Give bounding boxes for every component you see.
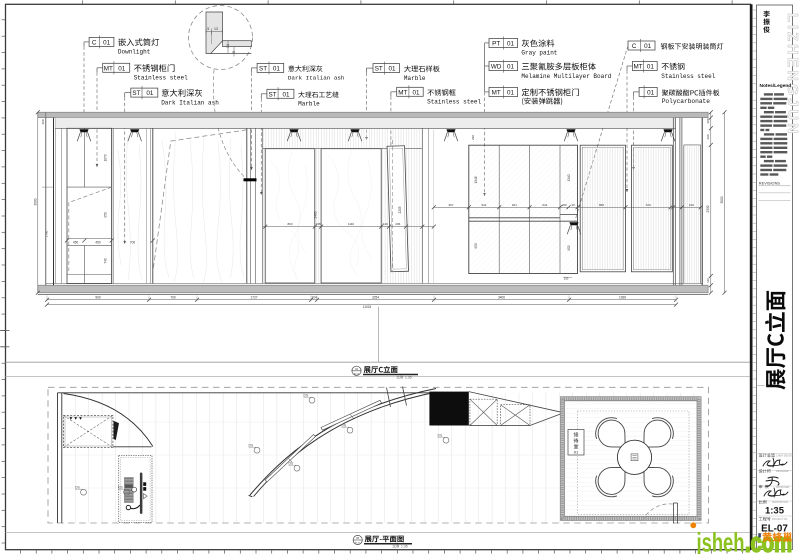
svg-text:01: 01 (146, 90, 154, 97)
svg-text:Stainless steel: Stainless steel (134, 75, 188, 82)
svg-text:397: 397 (448, 203, 453, 207)
svg-text:290: 290 (471, 135, 475, 140)
svg-text:2400: 2400 (313, 211, 317, 218)
svg-text:C: C (632, 43, 637, 50)
svg-text:MT: MT (492, 90, 501, 97)
svg-text:941: 941 (481, 203, 486, 207)
svg-text:450: 450 (95, 240, 101, 244)
svg-text:108: 108 (315, 222, 320, 226)
svg-text:01: 01 (388, 66, 396, 73)
svg-text:1340: 1340 (567, 174, 571, 181)
svg-text:DS: DS (249, 444, 254, 448)
svg-text:05: 05 (356, 536, 360, 540)
svg-text:866: 866 (599, 203, 604, 207)
svg-text:3254: 3254 (372, 295, 379, 299)
svg-text:PT: PT (492, 41, 500, 48)
svg-text:LIZHENGJUN: LIZHENGJUN (784, 13, 800, 137)
svg-text:01: 01 (282, 91, 290, 98)
svg-text:01: 01 (647, 64, 655, 71)
svg-text:MT: MT (104, 65, 113, 72)
svg-text:APPROVED: APPROVED (776, 486, 790, 489)
svg-text:2205: 2205 (398, 206, 402, 213)
svg-text:CHIEF DESIGN: CHIEF DESIGN (776, 454, 793, 457)
svg-text:ST: ST (259, 65, 267, 72)
svg-text:1939: 1939 (619, 295, 626, 299)
svg-text:MT: MT (633, 64, 642, 71)
svg-text:ST: ST (375, 66, 383, 73)
svg-text:ST: ST (132, 90, 140, 97)
svg-text:Melamine Multilayer Board: Melamine Multilayer Board (521, 73, 611, 80)
svg-text:EL07: EL07 (355, 543, 361, 545)
svg-text:1070: 1070 (104, 154, 108, 161)
svg-text:941: 941 (512, 203, 517, 207)
svg-text:01: 01 (507, 64, 515, 71)
svg-text:01: 01 (118, 65, 126, 72)
svg-text:450: 450 (73, 240, 79, 244)
svg-text:160: 160 (706, 278, 710, 283)
svg-text:PROPORTION: PROPORTION (772, 501, 788, 504)
svg-text:803: 803 (287, 222, 292, 226)
svg-text:1346: 1346 (474, 176, 478, 183)
svg-text:EL07: EL07 (354, 373, 360, 375)
svg-text:319: 319 (689, 203, 694, 207)
svg-text:REVISIONS: REVISIONS (759, 181, 781, 186)
svg-text:140: 140 (383, 222, 388, 226)
svg-text:jsheh: jsheh (696, 528, 745, 554)
svg-text:C: C (92, 39, 97, 46)
svg-text:01: 01 (413, 89, 421, 96)
svg-text:700: 700 (130, 240, 136, 244)
svg-text:MT: MT (398, 89, 407, 96)
svg-text:720: 720 (645, 203, 650, 207)
svg-text:DS: DS (75, 486, 80, 490)
svg-text:13: 13 (226, 44, 230, 48)
svg-text:11024: 11024 (363, 305, 372, 309)
svg-text:5: 5 (207, 27, 209, 31)
svg-text:01: 01 (574, 450, 579, 455)
svg-text:2330: 2330 (706, 205, 710, 212)
svg-text:Gray paint: Gray paint (521, 50, 557, 57)
svg-text:Stainless steel: Stainless steel (661, 73, 715, 80)
svg-text:Dark Italian ash: Dark Italian ash (161, 99, 219, 106)
svg-text:Dark Italian ash: Dark Italian ash (288, 75, 345, 82)
svg-text:290: 290 (706, 134, 710, 139)
svg-text:DESIGNER: DESIGNER (776, 470, 789, 473)
svg-text:3000: 3000 (720, 196, 724, 203)
svg-text:300: 300 (41, 119, 45, 124)
svg-text:296: 296 (395, 222, 400, 226)
svg-text:01: 01 (647, 89, 655, 96)
svg-text:PROJECT NO: PROJECT NO (772, 518, 788, 521)
svg-text:Polycarbonate: Polycarbonate (662, 98, 711, 105)
svg-text:01: 01 (644, 43, 652, 50)
svg-text:1:35: 1:35 (765, 505, 785, 516)
svg-text:DS: DS (304, 394, 309, 398)
svg-text:902: 902 (567, 245, 571, 251)
svg-text:1:35: 1:35 (401, 545, 408, 549)
svg-text:900: 900 (95, 295, 101, 299)
svg-text:01: 01 (507, 90, 515, 97)
svg-text:40: 40 (571, 203, 575, 207)
svg-text:DS: DS (438, 434, 443, 438)
svg-text:950: 950 (474, 243, 478, 249)
svg-text:04: 04 (355, 367, 359, 371)
svg-text:3000: 3000 (33, 198, 37, 205)
svg-text:Marble: Marble (298, 101, 320, 108)
svg-text:01: 01 (507, 41, 515, 48)
svg-text:Stainless steel: Stainless steel (427, 99, 481, 106)
svg-text:3400: 3400 (498, 295, 505, 299)
svg-text:DS: DS (289, 462, 294, 466)
svg-text:740: 740 (104, 258, 108, 264)
svg-text:941: 941 (542, 203, 547, 207)
svg-text:5: 5 (232, 51, 236, 53)
svg-text:DS: DS (342, 424, 347, 428)
svg-text:Marble: Marble (404, 75, 426, 82)
svg-text:700: 700 (170, 295, 176, 299)
svg-text:300: 300 (706, 118, 710, 123)
svg-text:WD: WD (491, 64, 502, 71)
svg-text:DS: DS (118, 486, 123, 490)
svg-text:Downlight: Downlight (118, 49, 150, 56)
svg-text:ST: ST (268, 91, 276, 98)
svg-text:104: 104 (311, 295, 317, 299)
svg-text:1727: 1727 (250, 295, 257, 299)
svg-text:1116: 1116 (348, 222, 355, 226)
svg-text:13: 13 (214, 27, 218, 31)
svg-text:1760: 1760 (44, 230, 48, 237)
svg-text:950: 950 (104, 212, 108, 218)
svg-text:200: 200 (562, 203, 567, 207)
svg-text:01: 01 (273, 65, 281, 72)
svg-text:Notes/Legend: Notes/Legend (760, 83, 792, 89)
svg-text:1:35: 1:35 (405, 376, 412, 380)
svg-text:01: 01 (103, 39, 111, 46)
